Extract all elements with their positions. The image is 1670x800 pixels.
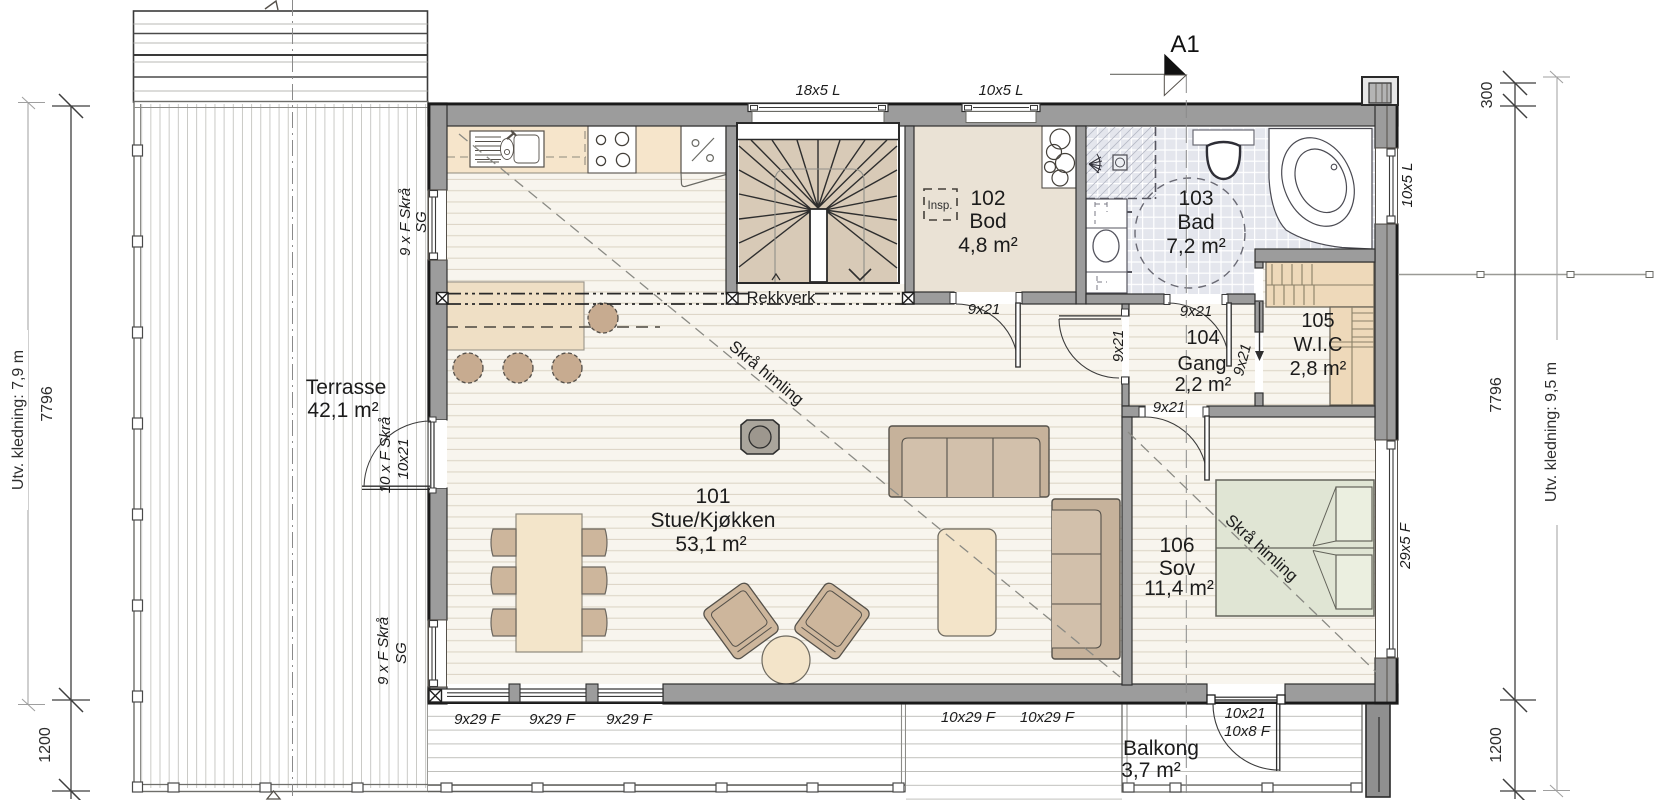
svg-text:10x29 F: 10x29 F <box>1020 709 1075 726</box>
svg-text:Balkong: Balkong <box>1123 737 1199 760</box>
svg-text:42,1 m²: 42,1 m² <box>307 399 378 422</box>
svg-text:A1: A1 <box>1170 31 1199 58</box>
svg-text:10x29 F: 10x29 F <box>941 709 996 726</box>
svg-text:10x8 F: 10x8 F <box>1224 723 1271 740</box>
svg-text:10 x F Skrå: 10 x F Skrå <box>377 417 394 493</box>
svg-text:9x21: 9x21 <box>1180 303 1213 320</box>
svg-text:9x21: 9x21 <box>968 301 1001 318</box>
svg-text:9x21: 9x21 <box>1153 399 1186 416</box>
svg-text:Stue/Kjøkken: Stue/Kjøkken <box>651 509 776 532</box>
svg-text:7,2 m²: 7,2 m² <box>1166 235 1226 258</box>
svg-text:Rekkverk: Rekkverk <box>747 289 817 307</box>
svg-text:7796: 7796 <box>39 386 56 422</box>
svg-text:2,2 m²: 2,2 m² <box>1175 374 1232 396</box>
svg-text:10x21: 10x21 <box>395 439 412 480</box>
svg-text:Gang: Gang <box>1178 353 1227 375</box>
svg-text:106: 106 <box>1159 534 1194 557</box>
svg-text:Bad: Bad <box>1177 211 1214 234</box>
svg-text:Insp.: Insp. <box>928 200 953 212</box>
svg-text:10x5 L: 10x5 L <box>1399 162 1416 207</box>
svg-text:9 x F Skrå: 9 x F Skrå <box>397 188 414 256</box>
svg-text:4,8 m²: 4,8 m² <box>958 234 1018 257</box>
svg-text:9x29 F: 9x29 F <box>454 711 501 728</box>
svg-text:9x29 F: 9x29 F <box>606 711 653 728</box>
svg-text:2,8 m²: 2,8 m² <box>1290 358 1347 380</box>
svg-text:3,7 m²: 3,7 m² <box>1121 759 1181 782</box>
svg-text:W.I.C: W.I.C <box>1294 334 1343 356</box>
svg-text:11,4 m²: 11,4 m² <box>1144 577 1214 600</box>
svg-text:29x5 F: 29x5 F <box>1397 522 1414 570</box>
svg-text:104: 104 <box>1186 327 1219 349</box>
svg-text:SG: SG <box>393 642 410 664</box>
svg-text:1200: 1200 <box>37 727 54 763</box>
svg-text:Utv. kledning: 9,5 m: Utv. kledning: 9,5 m <box>1543 362 1560 502</box>
svg-text:10x5 L: 10x5 L <box>978 82 1023 99</box>
svg-text:Bod: Bod <box>969 210 1006 233</box>
svg-text:105: 105 <box>1301 310 1334 332</box>
svg-text:1200: 1200 <box>1488 727 1505 763</box>
svg-text:53,1 m²: 53,1 m² <box>675 533 746 556</box>
svg-text:Terrasse: Terrasse <box>306 376 387 399</box>
svg-text:9x21: 9x21 <box>1110 330 1127 363</box>
svg-text:10x21: 10x21 <box>1225 705 1266 722</box>
svg-text:9 x F Skrå: 9 x F Skrå <box>375 617 392 685</box>
svg-text:102: 102 <box>970 187 1005 210</box>
svg-text:SG: SG <box>413 211 430 233</box>
svg-text:9x29 F: 9x29 F <box>529 711 576 728</box>
svg-text:300: 300 <box>1479 82 1496 109</box>
svg-text:7796: 7796 <box>1488 377 1505 413</box>
svg-text:Utv. kledning: 7,9 m: Utv. kledning: 7,9 m <box>10 350 27 490</box>
svg-text:18x5 L: 18x5 L <box>795 82 840 99</box>
svg-text:103: 103 <box>1178 187 1213 210</box>
svg-text:101: 101 <box>695 485 730 508</box>
